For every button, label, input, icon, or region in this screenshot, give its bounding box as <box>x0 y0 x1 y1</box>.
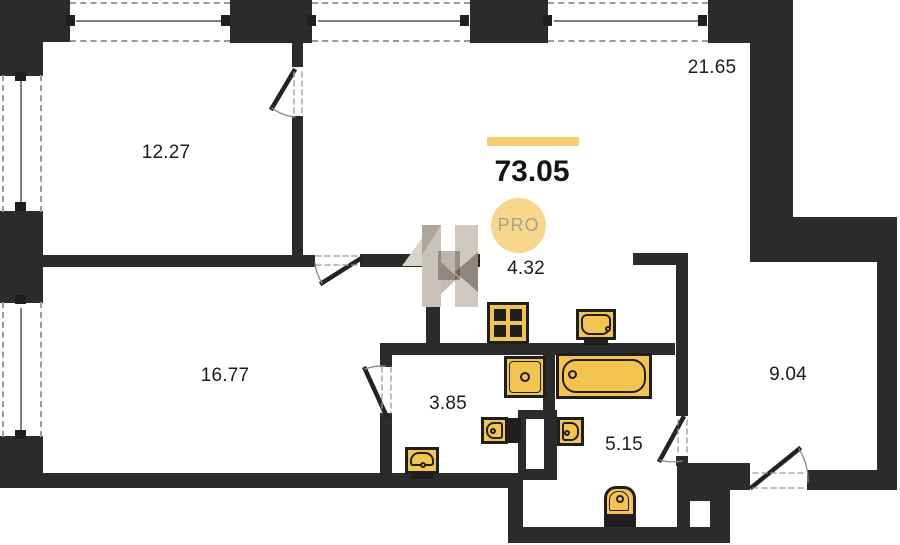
bathtub-icon <box>556 353 652 399</box>
window-glass-line <box>20 308 22 431</box>
wall-segment <box>360 254 480 267</box>
wall-segment <box>380 355 392 367</box>
washbasin-base <box>411 471 433 479</box>
door-bathroom-small <box>365 366 391 415</box>
wall-segment <box>470 0 548 43</box>
window-end <box>307 15 316 26</box>
window-outer-line <box>312 2 470 4</box>
burner <box>510 309 522 321</box>
door-jamb <box>676 406 688 416</box>
wall-segment <box>0 255 315 267</box>
duct-shaft-opening <box>526 419 544 469</box>
room-area-label-bedroom: 12.27 <box>142 142 191 164</box>
washbasin-icon <box>557 417 584 446</box>
toilet-icon <box>604 486 636 517</box>
watermark-facet <box>422 225 441 255</box>
wall-segment <box>0 473 523 488</box>
window-end <box>543 15 552 26</box>
floor-plan: 73.05 PRO 12.27 21.65 4.32 16.77 3.85 5.… <box>0 0 900 545</box>
burner <box>494 309 506 321</box>
wall-segment <box>0 0 70 42</box>
total-area-label: 73.05 <box>494 155 569 189</box>
window-inner-line <box>40 302 42 437</box>
window-outer-line <box>548 2 708 4</box>
washer-door <box>520 372 530 382</box>
window-glass-line <box>20 81 22 206</box>
room-area-label-room-right: 9.04 <box>769 364 807 386</box>
wall-segment <box>292 43 303 67</box>
washing-machine-icon <box>504 356 546 398</box>
window-inner-line <box>312 40 470 42</box>
window-end <box>15 202 26 211</box>
wall-segment <box>426 267 440 345</box>
window-inner-line <box>40 75 42 212</box>
washbasin-icon <box>405 447 439 474</box>
burner <box>494 325 506 337</box>
window-glass-line <box>76 20 224 22</box>
stove-icon <box>487 302 529 344</box>
kitchen-sink-icon <box>576 309 616 340</box>
wall-segment <box>793 217 897 262</box>
wall-segment <box>877 262 897 472</box>
window-end <box>15 430 26 439</box>
door-entrance <box>752 449 808 488</box>
window-end <box>15 72 26 81</box>
basin-drain <box>564 430 570 436</box>
window-outer-line <box>2 75 4 212</box>
wall-segment <box>750 42 793 262</box>
wall-segment <box>0 42 43 76</box>
room-area-label-bathroom-large: 5.15 <box>605 434 643 456</box>
wall-niche <box>690 501 710 527</box>
window-outer-line <box>2 302 4 437</box>
washbasin-base <box>507 418 521 443</box>
wall-segment <box>676 253 688 408</box>
sink-base <box>584 339 608 345</box>
wall-segment <box>230 0 312 43</box>
wall-segment <box>292 116 303 257</box>
basin-drain <box>420 462 426 468</box>
toilet-drain <box>616 495 624 503</box>
wall-segment <box>708 0 793 43</box>
window-glass-line <box>554 20 702 22</box>
door-room-bottom-left <box>315 256 360 283</box>
window-outer-line <box>70 2 230 4</box>
washbasin-icon <box>481 417 508 444</box>
window-end <box>221 15 230 26</box>
window-end <box>698 15 707 26</box>
wall-segment <box>380 413 392 475</box>
burner <box>510 325 522 337</box>
window-end <box>66 15 75 26</box>
wall-segment <box>677 463 750 490</box>
window-inner-line <box>548 40 708 42</box>
wall-segment <box>807 470 897 490</box>
tub-drain <box>568 370 577 379</box>
basin-drain <box>490 428 496 434</box>
door-bedroom <box>272 71 302 117</box>
window-end <box>460 15 469 26</box>
toilet-base <box>604 514 636 527</box>
room-area-label-hallway: 4.32 <box>507 258 545 280</box>
room-area-label-room-bottom-left: 16.77 <box>201 365 250 387</box>
window-glass-line <box>318 20 464 22</box>
window-end <box>15 295 26 304</box>
accent-bar <box>487 137 579 146</box>
window-inner-line <box>70 40 230 42</box>
sink-drain <box>605 326 611 332</box>
room-area-label-bathroom-small: 3.85 <box>429 393 467 415</box>
room-area-label-living-kitchen: 21.65 <box>688 57 737 79</box>
pro-badge: PRO <box>491 198 546 253</box>
